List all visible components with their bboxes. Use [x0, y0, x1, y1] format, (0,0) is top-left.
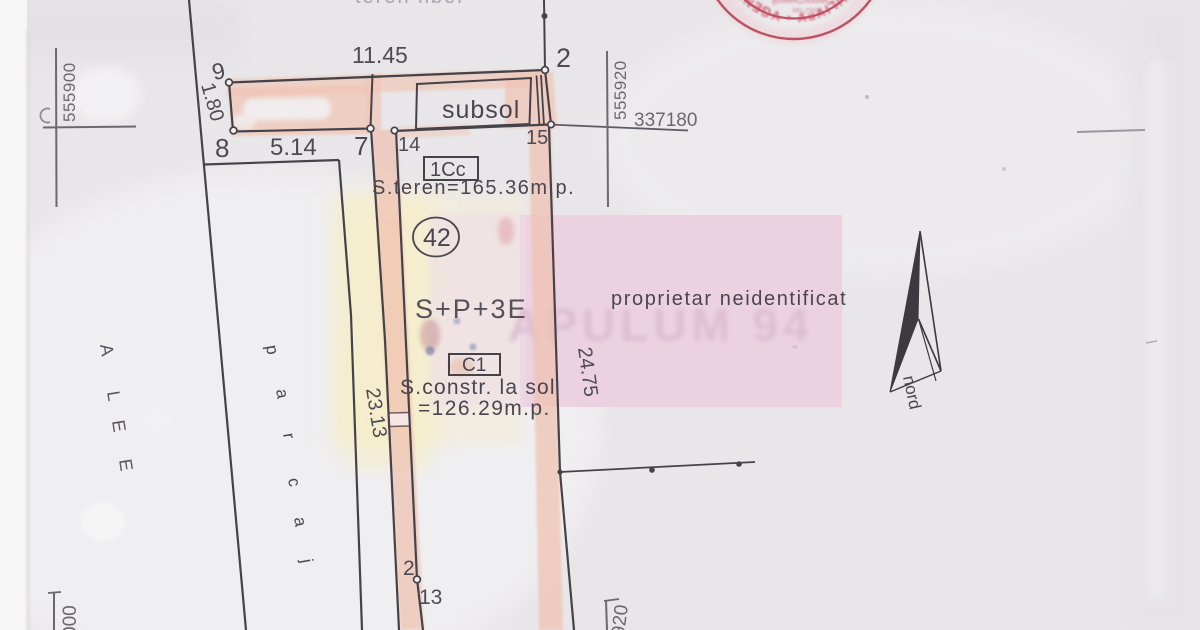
svg-text:14: 14	[398, 134, 420, 156]
svg-text:15: 15	[526, 127, 548, 149]
svg-text:subsol: subsol	[442, 96, 520, 124]
svg-text:000: 000	[60, 605, 81, 630]
svg-text:42: 42	[423, 224, 451, 252]
svg-text:8: 8	[215, 133, 229, 163]
svg-text:337180: 337180	[634, 110, 697, 131]
svg-text:920: 920	[608, 604, 633, 630]
svg-text:proprietar neidentificat: proprietar neidentificat	[611, 288, 847, 310]
svg-text:13: 13	[419, 586, 442, 609]
svg-text:5.14: 5.14	[270, 134, 317, 161]
svg-text:S+P+3E: S+P+3E	[415, 294, 528, 324]
svg-text:teren liber: teren liber	[355, 0, 466, 8]
svg-text:2: 2	[556, 43, 571, 73]
svg-text:S.constr. la sol: S.constr. la sol	[400, 376, 556, 399]
svg-text:мииэо*намдй: мииэо*намдй	[772, 0, 828, 6]
svg-text:S.teren=165.36m.p.: S.teren=165.36m.p.	[372, 177, 575, 199]
svg-text:2: 2	[403, 557, 415, 580]
svg-text:эsitu*ом: эsitu*ом	[792, 6, 822, 15]
svg-text:7: 7	[354, 131, 368, 161]
svg-text:555920: 555920	[611, 60, 630, 120]
svg-text:555900: 555900	[60, 62, 79, 122]
svg-text:11.45: 11.45	[352, 42, 408, 68]
svg-text:=126.29m.p.: =126.29m.p.	[418, 397, 551, 420]
svg-text:C1: C1	[462, 355, 486, 376]
